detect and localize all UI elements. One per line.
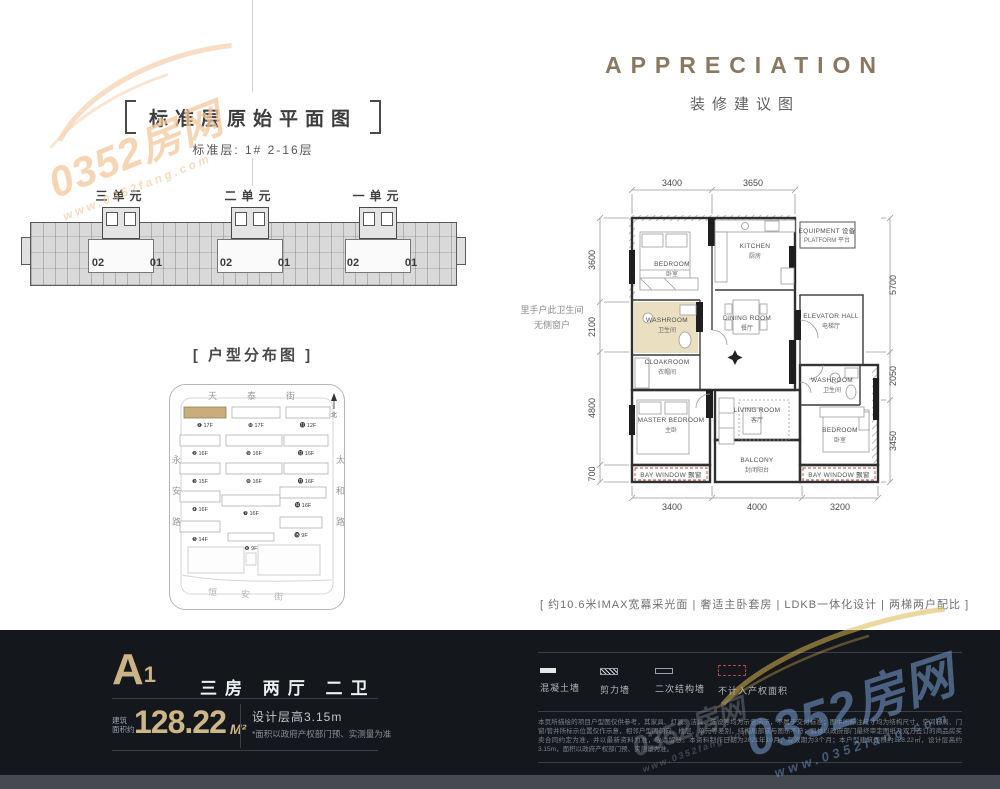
building-marker: ❹ 16F [192,507,209,513]
apartment-number: 01 [150,257,162,269]
standard-floor-strip-plan: 三单元 二单元 一单元 02 01 02 01 02 01 [30,222,457,286]
building-marker: ❿ 17F [248,423,265,429]
room-elevator-hall: ELEVATOR HALL [803,313,859,320]
dim-left-2: 2100 [587,317,597,337]
street-label-top: 天泰街 [208,389,328,402]
room-bedroom-top: BEDROOM [654,261,690,268]
unit-floor-plan: 3400 3650 3400 4000 3200 3600 2100 4800 … [585,150,905,522]
unit-label-1: 一单元 [352,187,403,204]
room-cloakroom: CLOAKROOM [645,359,690,366]
building-marker: ❼ 16F [243,511,260,517]
svg-text:电梯厅: 电梯厅 [822,322,840,330]
building-marker: ❺ 14F [192,536,209,543]
room-bay-window-left: BAY WINDOW 飘窗 [640,470,701,479]
legend-shear-wall: 剪力墙 [600,668,630,696]
svg-text:卧室: 卧室 [666,270,678,278]
dim-bottom-2: 4000 [747,502,767,512]
dim-right-1: 5700 [888,275,898,295]
site-plan: ❶ 17F ❿ 17F ⓫ 12F ❷ 16F ❾ 16F ⓬ 16F ❸ 15… [168,383,346,611]
svg-text:厨房: 厨房 [749,252,761,260]
strip-end-right [456,237,466,265]
svg-text:PLATFORM 平台: PLATFORM 平台 [804,236,850,244]
legend-concrete-wall: 混凝土墙 [540,668,580,694]
info-bar: A1 三房 两厅 二卫 建筑 面积约 128.22 M² 设计层高3.15m *… [0,630,1000,775]
elevator-hall-area [800,295,863,365]
building-marker: ❾ 16F [246,450,263,457]
area-value: 128.22 [134,706,226,738]
legend-non-property-area: 不计入产权面积 [718,668,788,697]
dim-left-1: 3600 [587,250,597,270]
divider [538,711,962,712]
dim-right-2: 2050 [888,366,898,386]
selling-points-tagline: [ 约10.6米IMAX宽幕采光面 | 奢适主卧套房 | LDKB一体化设计 |… [540,596,950,612]
area-value-row: 128.22 M² [134,706,246,738]
svg-text:衣帽间: 衣帽间 [658,368,676,376]
apartment-number: 01 [405,257,417,269]
dim-top-1: 3400 [662,178,682,188]
svg-text:卫生间: 卫生间 [823,386,841,394]
appreciation-header: APPRECIATION 装修建议图 [585,52,905,114]
svg-text:封闭阳台: 封闭阳台 [745,466,769,474]
standard-plan-subtitle: 标准层: 1# 2-16层 [103,141,403,158]
bottom-strip [0,775,1000,789]
standard-plan-title: 标准层原始平面图 [149,104,357,131]
dim-bottom-1: 3400 [662,502,682,512]
street-label-right: 太和路 [334,455,347,548]
building-marker: ⓬ 16F [298,449,315,457]
svg-text:卧室: 卧室 [834,436,846,444]
divider [240,704,241,748]
building-marker: ⓮ 16F [295,501,312,509]
divider-line-top [252,0,253,92]
apartment-number: 02 [92,257,104,269]
site-plan-drawing: ❶ 17F ❿ 17F ⓫ 12F ❷ 16F ❾ 16F ⓬ 16F ❸ 15… [168,383,346,611]
building-marker: ⓯ 9F [294,531,308,539]
bracket-left [125,100,136,134]
layout-summary: 三房 两厅 二卫 [200,674,375,699]
legend-swatch-outline [655,668,673,674]
building-marker: ⓭ 16F [298,477,315,485]
room-balcony: BALCONY [740,457,774,464]
strip-end-left [21,237,31,265]
divider [112,698,378,699]
room-bedroom-right: BEDROOM [822,427,858,434]
apartment-number: 02 [220,257,232,269]
washroom-side-note: 里手户此卫生间 无侧窗户 [516,303,588,333]
dim-left-4: 700 [587,466,597,481]
room-washroom-right: WASHROOM [811,377,853,384]
svg-text:主卧: 主卧 [665,426,677,434]
room-equipment-platform: EQUIPMENT 设备 [799,226,856,235]
room-master-bedroom: MASTER BEDROOM [638,417,705,424]
building-marker: ⓫ 12F [300,421,317,429]
area-accuracy-note: *面积以政府产权部门预、实测量为准 [252,728,391,740]
area-unit: M² [230,720,246,738]
building-marker: ❻ 9F [245,545,259,552]
appreciation-subtitle: 装修建议图 [585,93,905,114]
standard-plan-title-block: 标准层原始平面图 [103,100,403,134]
room-washroom-main: WASHROOM [646,317,688,324]
apartment-number: 01 [278,257,290,269]
equipment-platform-area [800,222,855,248]
dim-left-3: 4800 [587,398,597,418]
room-dining: DINING ROOM [723,315,771,322]
svg-text:客厅: 客厅 [751,416,763,424]
divider [538,762,962,763]
legend-swatch-hatch [600,668,618,675]
room-kitchen: KITCHEN [740,243,771,250]
floorplan-poster: 标准层原始平面图 标准层: 1# 2-16层 三单元 二单元 一单元 02 01… [0,0,1000,789]
bracket-right [370,100,381,134]
distribution-title: [ 户型分布图 ] [103,344,403,365]
building-marker: ❸ 15F [192,478,209,485]
stair-core [231,207,269,239]
street-label-left: 永安路 [170,455,183,548]
north-label: 北 [331,411,337,419]
area-label: 建筑 面积约 [112,716,135,734]
building-marker: ❶ 17F [197,423,214,429]
appreciation-title: APPRECIATION [585,52,905,79]
dim-right-3: 3450 [888,431,898,451]
unit-floor-plan-drawing: 3400 3650 3400 4000 3200 3600 2100 4800 … [585,150,905,522]
svg-text:卫生间: 卫生间 [658,326,676,334]
entry-star-icon [728,350,743,365]
apartment-number: 02 [347,257,359,269]
unit-label-2: 二单元 [224,187,275,204]
room-living: LIVING ROOM [734,407,781,414]
stair-core [102,207,140,239]
divider [538,652,962,653]
dim-bottom-3: 3200 [830,502,850,512]
legend-secondary-wall: 二次结构墙 [655,668,705,695]
legend-swatch-solid [540,668,556,673]
building-marker: ❷ 16F [192,451,209,457]
unit-code: A1 [112,648,156,692]
disclaimer-text: 本页所描绘的项目户型图仅供参考，其家具、灯具、洁具、陈设等均为示意演示，不属于交… [538,718,962,754]
divider [112,750,378,751]
floor-height-note: 设计层高3.15m [252,708,342,725]
stair-core [359,207,397,239]
dim-top-2: 3650 [743,178,763,188]
divider-line-mid [252,158,253,186]
building-marker: ❽ 16F [246,478,263,485]
unit-label-3: 三单元 [95,187,146,204]
svg-text:餐厅: 餐厅 [741,324,753,332]
legend-swatch-dashed [718,665,746,676]
room-bay-window-right: BAY WINDOW 飘窗 [808,470,869,479]
